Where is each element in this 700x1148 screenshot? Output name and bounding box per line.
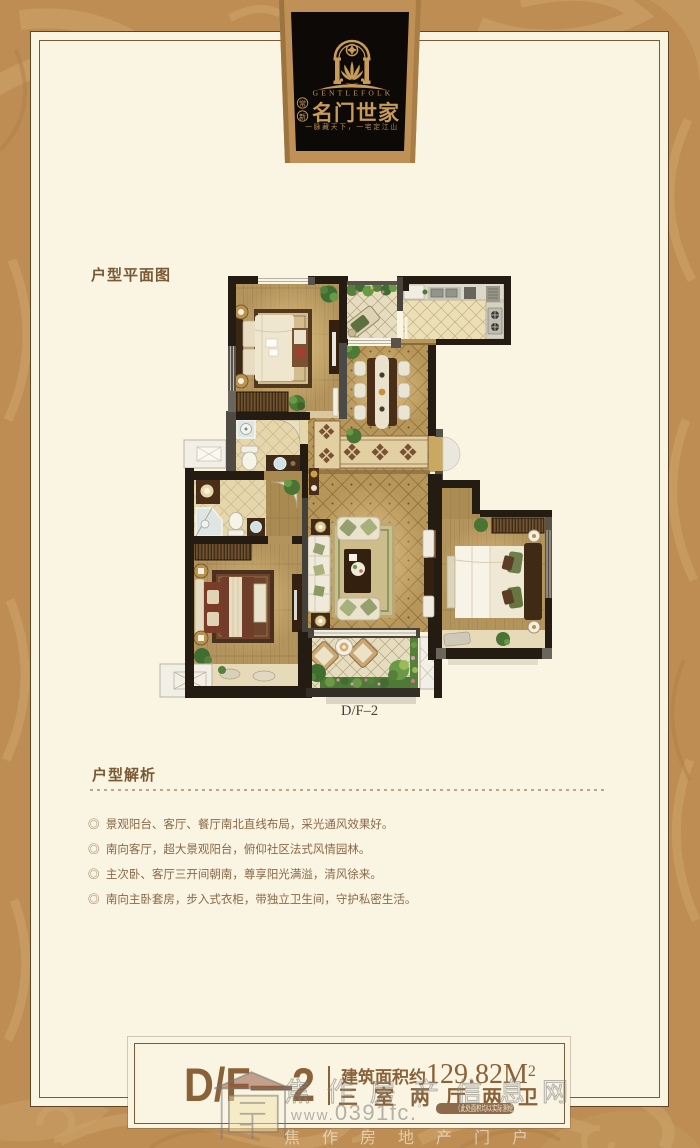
svg-text:新: 新 xyxy=(299,112,306,121)
svg-text:常: 常 xyxy=(299,99,306,108)
svg-text:一脉藏天下，一宅定江山: 一脉藏天下，一宅定江山 xyxy=(305,122,398,131)
svg-text:GENTLEFOLK: GENTLEFOLK xyxy=(313,89,394,98)
svg-text:名门世家: 名门世家 xyxy=(312,101,400,125)
